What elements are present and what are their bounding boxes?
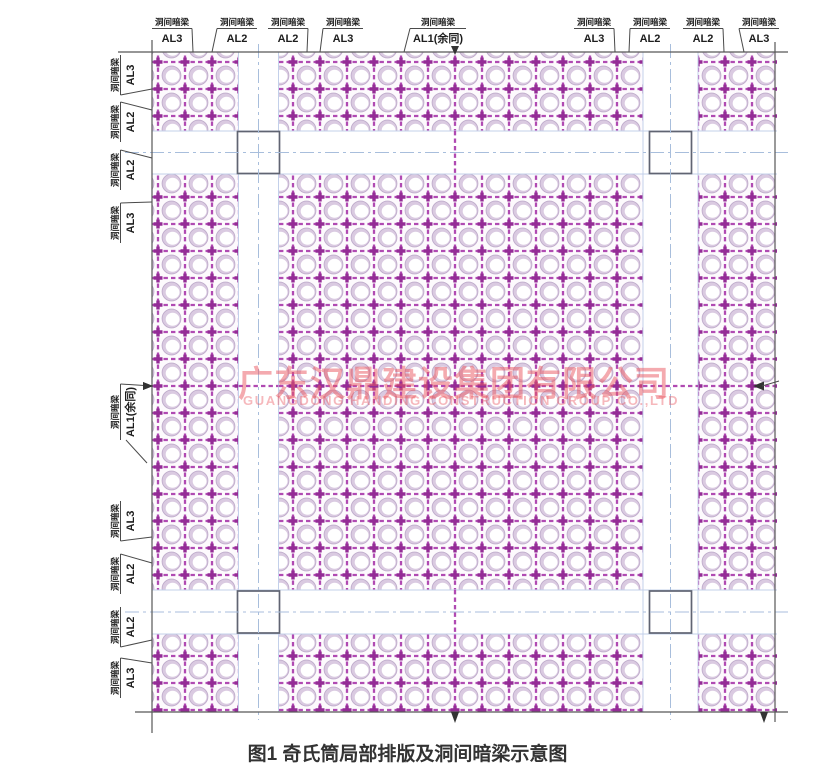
beam-leader-line bbox=[212, 29, 217, 53]
beam-tag-text: 洞间暗梁 bbox=[110, 58, 120, 93]
beam-code-text: AL2 bbox=[125, 564, 137, 585]
figure-area: 洞间暗梁AL3洞间暗梁AL2洞间暗梁AL2洞间暗梁AL3洞间暗梁AL1(余同)洞… bbox=[0, 0, 815, 774]
al1-left-leader-extra bbox=[126, 440, 147, 463]
beam-code-text: AL3 bbox=[125, 65, 137, 86]
beam-code-text: AL2 bbox=[125, 617, 137, 638]
beam-code-text: AL2 bbox=[640, 33, 661, 45]
left-beam-label: 洞间暗梁AL3 bbox=[110, 501, 152, 541]
al1-bottom-right-arrow bbox=[760, 712, 768, 723]
left-beam-label: 洞间暗梁AL3 bbox=[110, 202, 152, 243]
top-beam-label: 洞间暗梁AL3 bbox=[152, 17, 193, 52]
beam-leader-line bbox=[121, 89, 153, 95]
beam-code-text: AL3 bbox=[584, 33, 605, 45]
left-beam-label: 洞间暗梁AL2 bbox=[110, 102, 152, 142]
beam-leader-line bbox=[739, 29, 744, 53]
beam-code-text: AL2 bbox=[227, 33, 248, 45]
left-beam-label: 洞间暗梁AL2 bbox=[110, 607, 152, 647]
top-beam-label: 洞间暗梁AL2 bbox=[268, 17, 308, 52]
beam-code-text: AL2 bbox=[125, 160, 137, 181]
beam-tag-text: 洞间暗梁 bbox=[110, 105, 120, 140]
beam-code-text: AL3 bbox=[749, 33, 770, 45]
beam-tag-text: 洞间暗梁 bbox=[110, 557, 120, 592]
beam-leader-line bbox=[192, 29, 193, 53]
beam-tag-text: 洞间暗梁 bbox=[271, 17, 306, 27]
watermark-english: GUANGDONG HANDING CONSTRUCTION GROUP CO.… bbox=[243, 393, 673, 408]
left-beam-label: 洞间暗梁AL1(余同) bbox=[110, 382, 153, 440]
top-beam-label: 洞间暗梁AL2 bbox=[629, 17, 670, 52]
beam-code-text: AL2 bbox=[125, 112, 137, 133]
beam-tag-text: 洞间暗梁 bbox=[110, 504, 120, 539]
left-beam-label: 洞间暗梁AL3 bbox=[110, 658, 152, 698]
beam-tag-text: 洞间暗梁 bbox=[110, 610, 120, 645]
beam-leader-line bbox=[121, 102, 153, 110]
beam-tag-text: 洞间暗梁 bbox=[110, 661, 120, 696]
beam-leader-line bbox=[121, 537, 153, 541]
beam-code-text: AL1(余同) bbox=[123, 387, 137, 437]
beam-tag-text: 洞间暗梁 bbox=[742, 17, 777, 27]
top-beam-label: 洞间暗梁AL2 bbox=[683, 17, 724, 52]
beam-code-text: AL3 bbox=[162, 33, 183, 45]
beam-leader-line bbox=[307, 29, 308, 53]
beam-tag-text: 洞间暗梁 bbox=[421, 17, 456, 27]
beam-code-text: AL3 bbox=[125, 668, 137, 689]
beam-leader-line bbox=[614, 29, 615, 53]
beam-code-text: AL3 bbox=[125, 213, 137, 234]
beam-leader-line bbox=[320, 29, 323, 53]
top-beam-label: 洞间暗梁AL1(余同) bbox=[404, 17, 466, 55]
beam-tag-text: 洞间暗梁 bbox=[686, 17, 721, 27]
left-beam-label: 洞间暗梁AL3 bbox=[110, 55, 152, 95]
beam-tag-text: 洞间暗梁 bbox=[110, 153, 120, 188]
beam-leader-line bbox=[723, 29, 724, 53]
top-beam-labels: 洞间暗梁AL3洞间暗梁AL2洞间暗梁AL2洞间暗梁AL3洞间暗梁AL1(余同)洞… bbox=[152, 17, 779, 55]
beam-leader-line bbox=[121, 202, 153, 203]
beam-tag-text: 洞间暗梁 bbox=[633, 17, 668, 27]
al1-bottom-arrow bbox=[451, 712, 459, 723]
beam-code-text: AL2 bbox=[693, 33, 714, 45]
left-beam-label: 洞间暗梁AL2 bbox=[110, 554, 152, 594]
beam-leader-line bbox=[121, 554, 153, 563]
beam-code-text: AL3 bbox=[333, 33, 354, 45]
top-beam-label: 洞间暗梁AL3 bbox=[739, 17, 779, 52]
figure-caption: 图1 奇氏筒局部排版及洞间暗梁示意图 bbox=[0, 739, 815, 766]
beam-tag-text: 洞间暗梁 bbox=[220, 17, 255, 27]
beam-code-text: AL3 bbox=[125, 511, 137, 532]
beam-tag-text: 洞间暗梁 bbox=[110, 395, 120, 430]
beam-tag-text: 洞间暗梁 bbox=[155, 17, 190, 27]
top-beam-label: 洞间暗梁AL2 bbox=[212, 17, 257, 52]
beam-tag-text: 洞间暗梁 bbox=[577, 17, 612, 27]
beam-tag-text: 洞间暗梁 bbox=[110, 206, 120, 241]
beam-leader-line bbox=[121, 640, 153, 647]
left-beam-labels: 洞间暗梁AL3洞间暗梁AL2洞间暗梁AL2洞间暗梁AL3洞间暗梁AL1(余同)洞… bbox=[110, 55, 153, 698]
beam-tag-text: 洞间暗梁 bbox=[326, 17, 361, 27]
top-beam-label: 洞间暗梁AL3 bbox=[574, 17, 615, 52]
beam-leader-line bbox=[121, 150, 153, 158]
beam-leader-line bbox=[121, 658, 153, 663]
beam-code-text: AL2 bbox=[278, 33, 299, 45]
top-beam-label: 洞间暗梁AL3 bbox=[320, 17, 363, 52]
beam-leader-line bbox=[629, 29, 630, 53]
beam-code-text: AL1(余同) bbox=[413, 31, 463, 45]
beam-leader-line bbox=[404, 29, 410, 53]
left-beam-label: 洞间暗梁AL2 bbox=[110, 150, 152, 190]
